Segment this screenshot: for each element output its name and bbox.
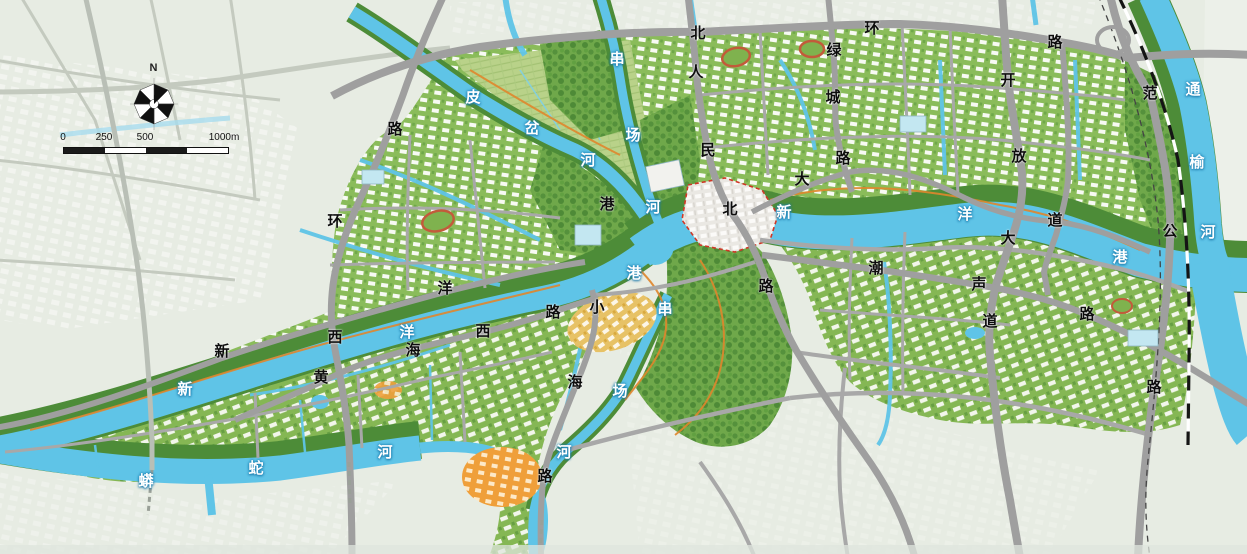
scale-tick-0: 0 [43,132,83,143]
compass-rose-icon [128,76,180,132]
master-plan-map: 北环路路环西人民北路绿城路开放大道大道潮声路范公路新洋黄海西路小海路港串场河皮岔… [0,0,1247,554]
bottom-band [0,545,1247,554]
map-graphics [0,0,1247,554]
compass-rose: N [128,62,180,138]
scale-tick-500: 500 [125,132,165,143]
scale-bar: 0 250 500 1000m [56,132,246,162]
orange-retail-street [462,447,542,507]
scale-tick-250: 250 [84,132,124,143]
compass-north-label: N [128,62,180,74]
scale-tick-1000: 1000m [204,132,244,143]
scale-bar-segments [63,147,229,154]
